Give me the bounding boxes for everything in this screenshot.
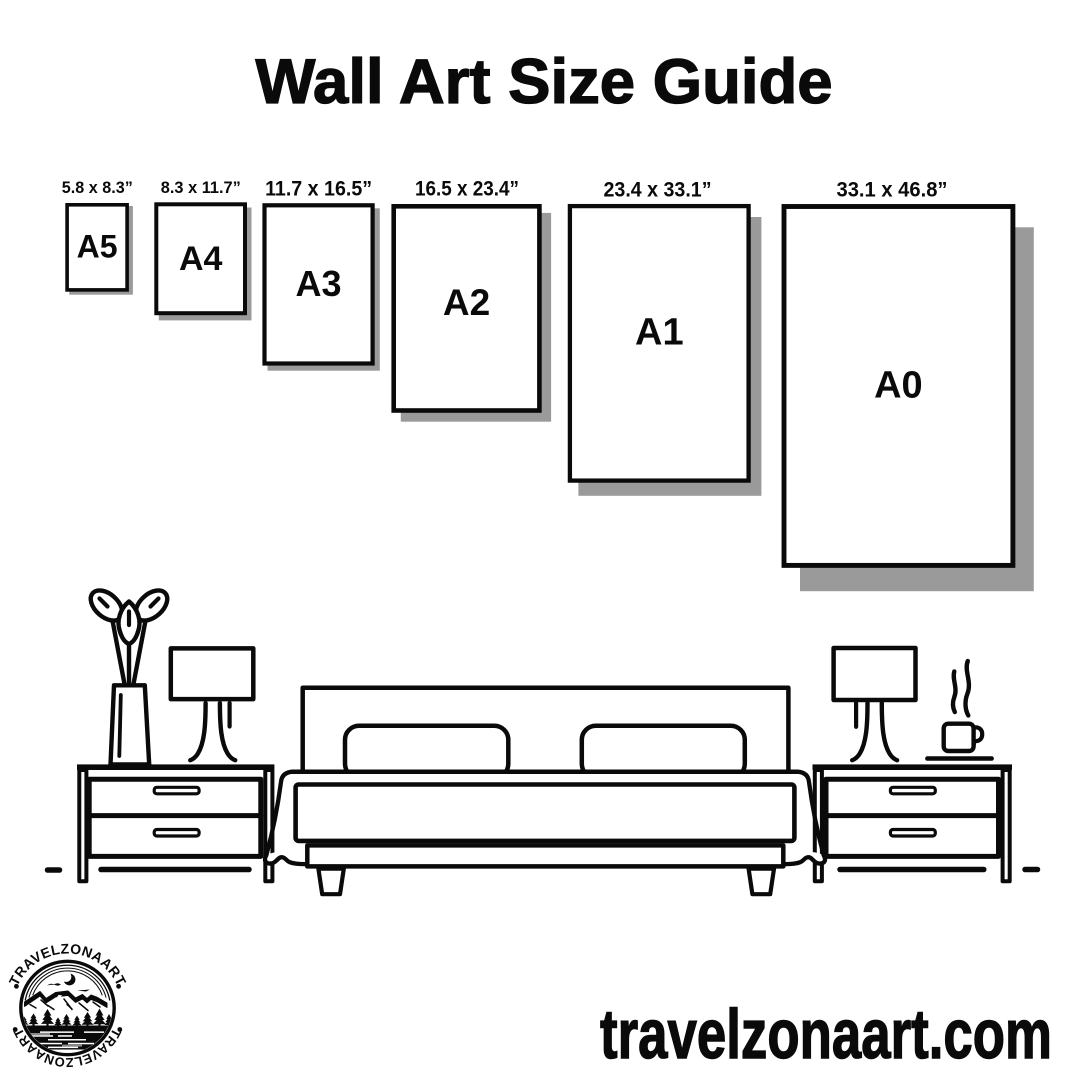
svg-text:A1: A1 xyxy=(635,312,684,354)
svg-text:33.1 x 46.8”: 33.1 x 46.8” xyxy=(837,179,948,202)
svg-text:Wall Art Size Guide: Wall Art Size Guide xyxy=(256,47,833,117)
svg-text:travelzonaart.com: travelzonaart.com xyxy=(600,995,1052,1073)
svg-text:A2: A2 xyxy=(443,282,490,323)
svg-text:23.4 x 33.1”: 23.4 x 33.1” xyxy=(604,179,712,202)
svg-text:16.5 x 23.4”: 16.5 x 23.4” xyxy=(415,178,519,201)
svg-text:5.8 x 8.3”: 5.8 x 8.3” xyxy=(62,178,133,197)
svg-text:8.3 x 11.7”: 8.3 x 11.7” xyxy=(161,178,241,197)
svg-text:A3: A3 xyxy=(296,263,342,304)
svg-text:A0: A0 xyxy=(874,364,923,406)
svg-text:A5: A5 xyxy=(77,228,118,264)
svg-text:A4: A4 xyxy=(179,240,223,278)
svg-text:11.7 x 16.5”: 11.7 x 16.5” xyxy=(265,178,372,201)
